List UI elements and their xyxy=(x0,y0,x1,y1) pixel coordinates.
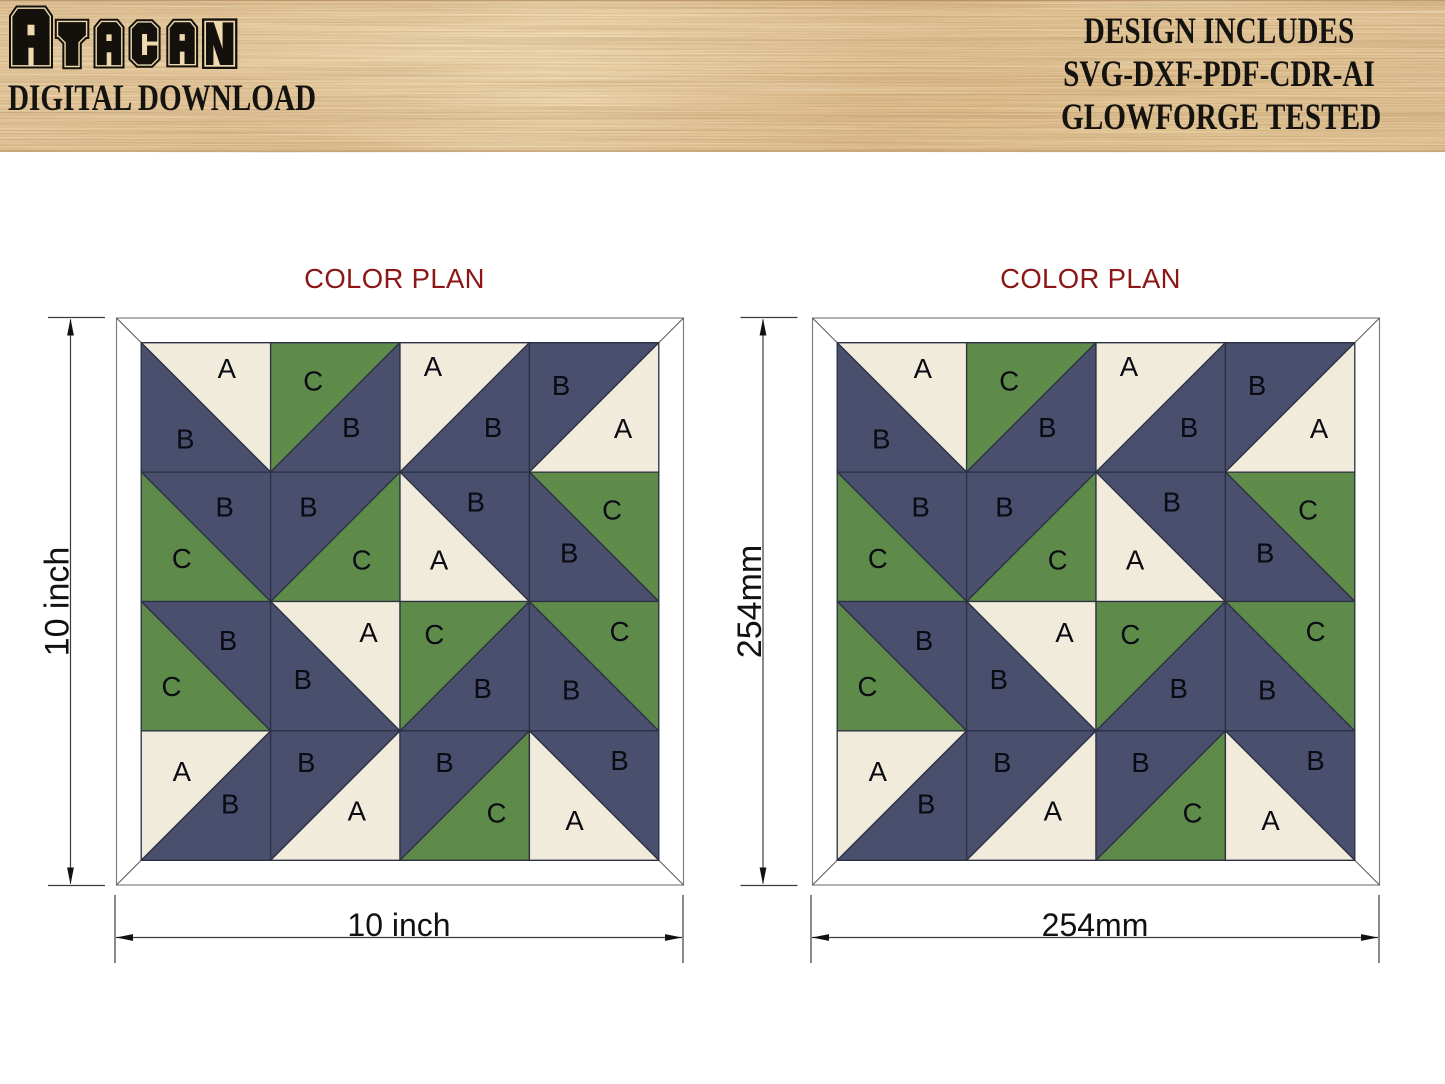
svg-text:COLOR PLAN: COLOR PLAN xyxy=(1000,263,1181,294)
svg-text:254mm: 254mm xyxy=(731,545,769,658)
svg-text:10 inch: 10 inch xyxy=(39,547,77,657)
svg-text:10 inch: 10 inch xyxy=(347,907,450,943)
svg-text:COLOR PLAN: COLOR PLAN xyxy=(304,263,485,294)
svg-text:254mm: 254mm xyxy=(1042,907,1149,943)
